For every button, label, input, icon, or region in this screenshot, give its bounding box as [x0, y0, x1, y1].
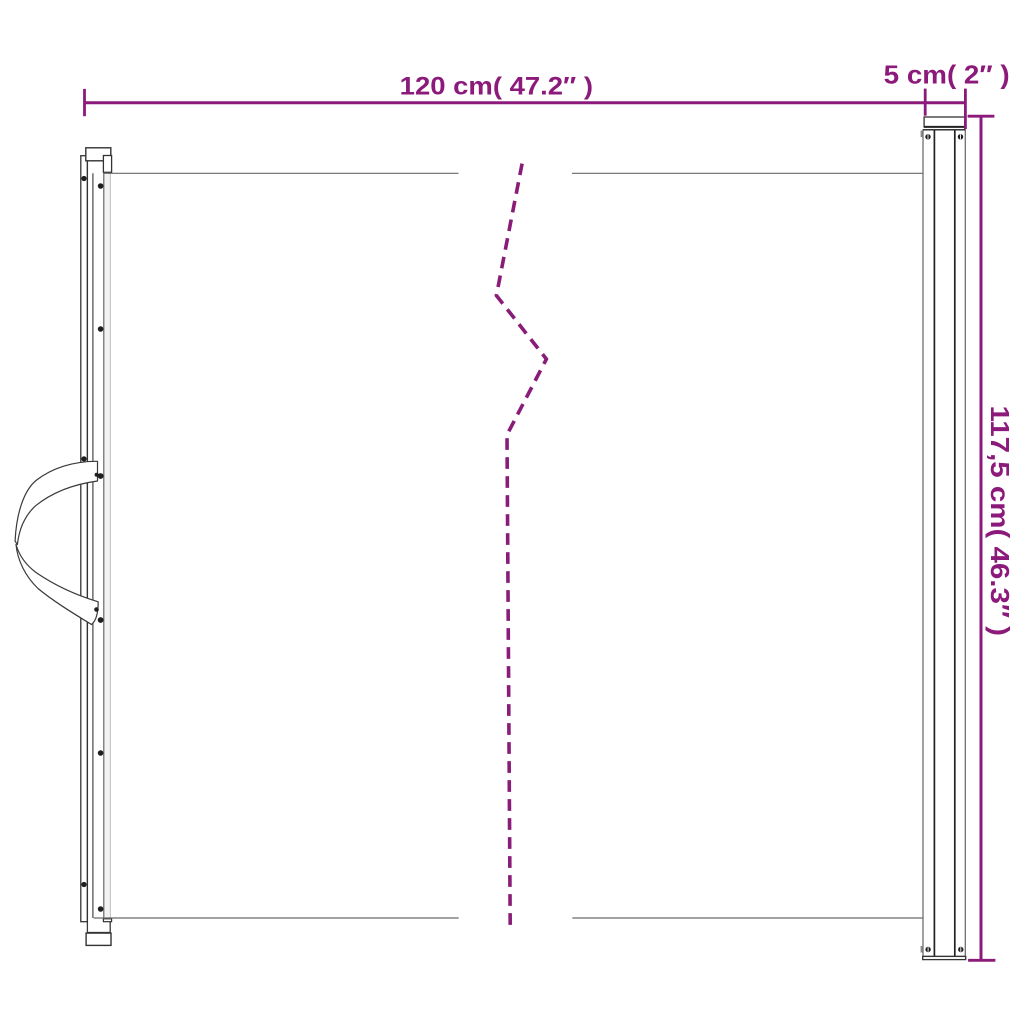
- svg-text:5 cm( 2″ ): 5 cm( 2″ ): [884, 62, 1010, 90]
- svg-text:117,5 cm( 46.3″ ): 117,5 cm( 46.3″ ): [985, 406, 1015, 637]
- svg-text:120 cm( 47.2″ ): 120 cm( 47.2″ ): [400, 73, 593, 101]
